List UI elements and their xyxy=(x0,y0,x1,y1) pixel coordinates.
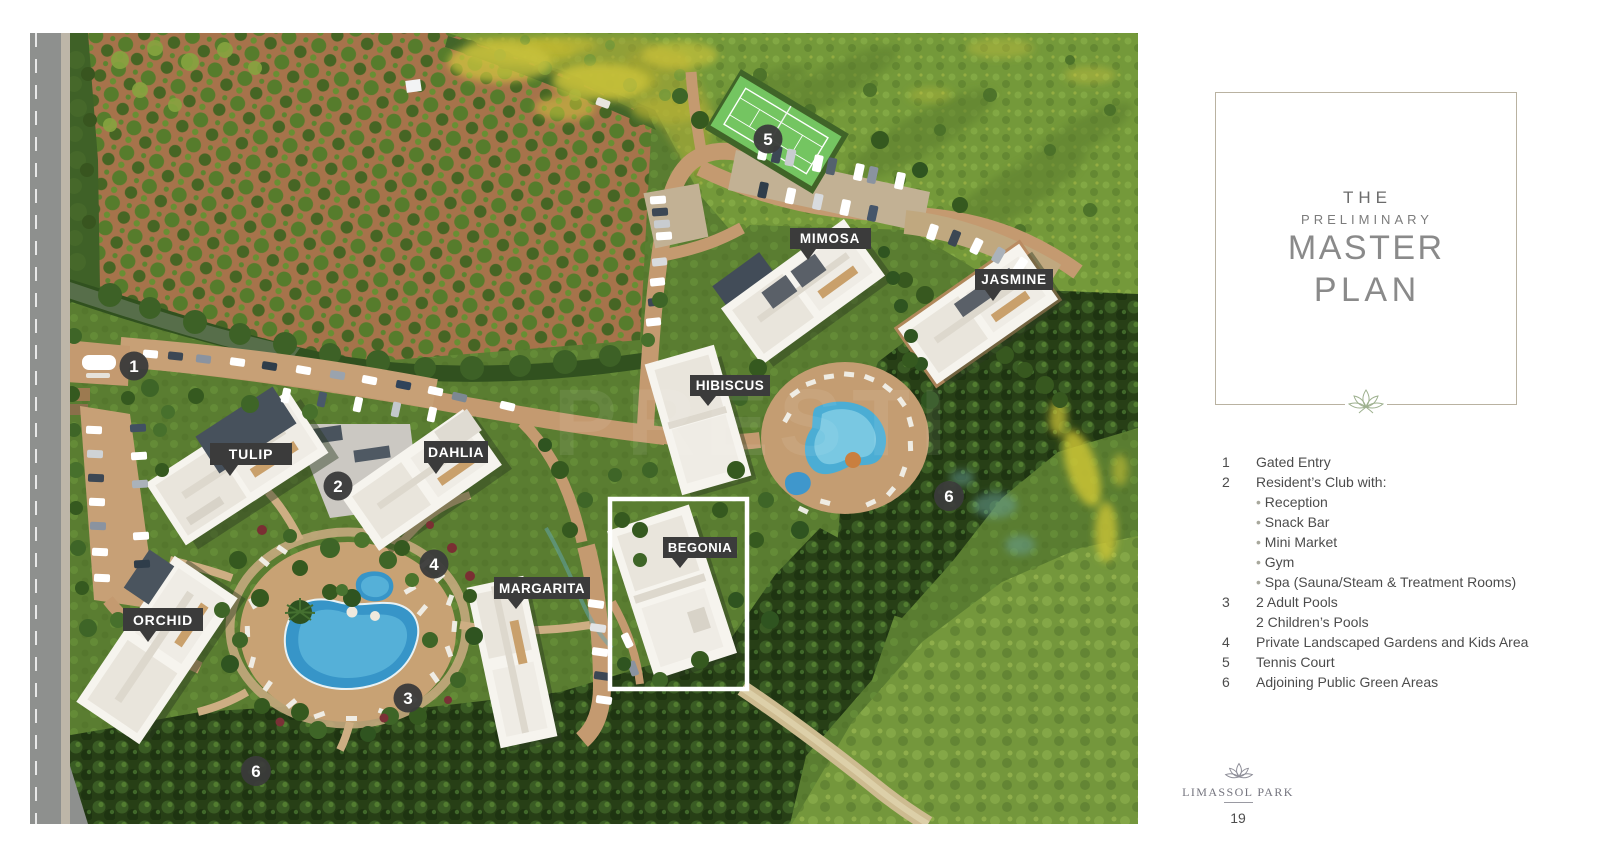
svg-text:2: 2 xyxy=(333,477,342,496)
svg-text:MIMOSA: MIMOSA xyxy=(800,231,860,246)
svg-text:MARGARITA: MARGARITA xyxy=(499,581,585,596)
svg-text:6: 6 xyxy=(944,487,953,506)
svg-text:5: 5 xyxy=(763,130,772,149)
svg-text:1: 1 xyxy=(129,357,138,376)
svg-text:3: 3 xyxy=(403,689,412,708)
svg-text:JASMINE: JASMINE xyxy=(981,272,1047,287)
svg-text:BEGONIA: BEGONIA xyxy=(668,540,732,555)
svg-text:4: 4 xyxy=(429,555,439,574)
svg-text:TULIP: TULIP xyxy=(229,446,273,462)
svg-text:HIBISCUS: HIBISCUS xyxy=(696,378,765,393)
svg-text:DAHLIA: DAHLIA xyxy=(428,444,484,460)
svg-text:6: 6 xyxy=(251,762,260,781)
svg-text:ORCHID: ORCHID xyxy=(133,612,193,628)
